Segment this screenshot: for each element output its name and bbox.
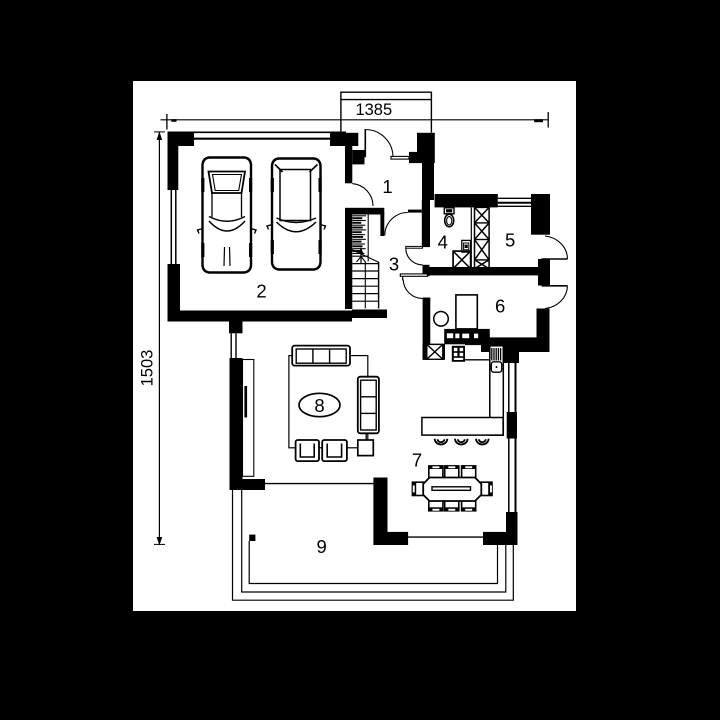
svg-text:1503: 1503: [139, 350, 157, 387]
svg-text:1385: 1385: [355, 101, 392, 119]
svg-text:1: 1: [382, 176, 392, 197]
svg-text:2: 2: [256, 281, 266, 302]
svg-text:8: 8: [314, 395, 324, 416]
svg-text:4: 4: [438, 232, 448, 253]
svg-text:3: 3: [389, 254, 399, 275]
svg-text:5: 5: [505, 230, 515, 251]
svg-text:7: 7: [412, 450, 422, 471]
svg-text:9: 9: [317, 536, 327, 557]
svg-text:6: 6: [495, 296, 505, 317]
